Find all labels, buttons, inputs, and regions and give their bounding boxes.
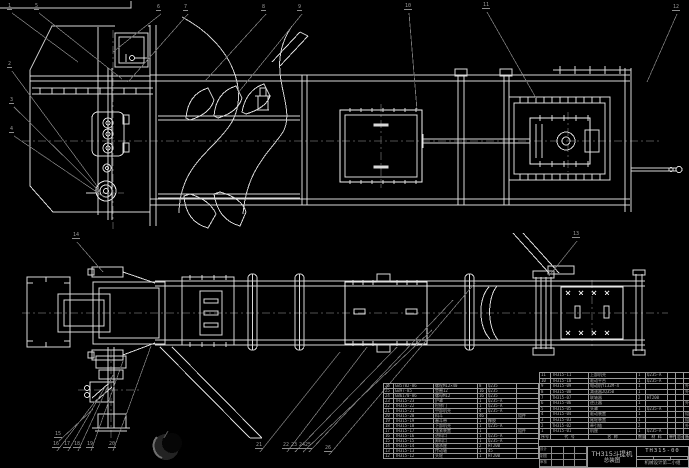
part-callout: 20 xyxy=(108,442,116,448)
part-callout: 5 xyxy=(34,4,39,10)
signature-cell xyxy=(552,454,564,461)
signature-cell xyxy=(552,447,564,454)
signature-cell xyxy=(575,447,587,454)
part-callout: 25 xyxy=(304,443,312,449)
bom-row: 12TH315-12头轮1HT200 xyxy=(384,454,539,459)
part-callout: 18 xyxy=(73,442,81,448)
part-callout: 8 xyxy=(261,5,266,11)
bom-header-row: 序号代 号名 称数量材 料单件总计备注 xyxy=(540,434,689,439)
part-callout: 1 xyxy=(7,4,12,10)
part-callout: 12 xyxy=(672,5,680,11)
drawing-number-cell: TH315-00 机械设计第二小组 xyxy=(637,447,688,467)
part-callout: 6 xyxy=(156,5,161,11)
part-callout: 3 xyxy=(9,98,14,104)
part-callout: 22 xyxy=(282,443,290,449)
signature-cell xyxy=(552,460,564,467)
signature-cell xyxy=(564,447,576,454)
drawing-viewport[interactable]: 1234567891011121314151617181920212223242… xyxy=(0,0,689,468)
part-callout: 10 xyxy=(404,4,412,10)
part-callout: 4 xyxy=(9,127,14,133)
drawing-title: 总装图 xyxy=(604,458,621,465)
bom-table-left: 26GB5782-86螺栓M12×408Q23525GB97-85垫圈1216Q… xyxy=(383,383,538,459)
signature-cell xyxy=(575,460,587,467)
title-block: 设计制图审核 TH315斗提机 总装图 TH315-00 机械设计第二小组 xyxy=(539,446,689,468)
part-callout: 17 xyxy=(63,442,71,448)
signature-label: 审核 xyxy=(540,460,552,467)
part-callout: 21 xyxy=(255,443,263,449)
part-callout: 14 xyxy=(72,233,80,239)
signature-cell xyxy=(564,460,576,467)
part-callout: 9 xyxy=(297,5,302,11)
signature-label: 设计 xyxy=(540,447,552,454)
part-callout: 16 xyxy=(52,442,60,448)
product-name: TH315斗提机 xyxy=(592,450,633,458)
top-view xyxy=(30,17,682,273)
part-callout: 11 xyxy=(482,3,490,9)
drawing-number: TH315-00 xyxy=(637,447,688,457)
part-callout: 2 xyxy=(7,62,12,68)
sheet-border xyxy=(0,1,131,8)
signature-cell xyxy=(575,454,587,461)
bom-table-right: 11TH315-11上部机壳1Q235-A10TH315-10驱动平台1Q235… xyxy=(539,372,689,440)
part-callout: 13 xyxy=(572,232,580,238)
part-callout: 7 xyxy=(183,5,188,11)
signature-grid: 设计制图审核 xyxy=(540,447,588,467)
title-cell: TH315斗提机 总装图 xyxy=(588,447,637,467)
part-callout: 26 xyxy=(324,446,332,452)
part-callout: 15 xyxy=(54,432,62,438)
organization: 机械设计第二小组 xyxy=(637,460,688,467)
signature-cell xyxy=(564,454,576,461)
crescent-watermark-logo xyxy=(153,431,182,460)
signature-label: 制图 xyxy=(540,454,552,461)
part-callout: 23 xyxy=(290,443,298,449)
part-callout: 19 xyxy=(86,442,94,448)
